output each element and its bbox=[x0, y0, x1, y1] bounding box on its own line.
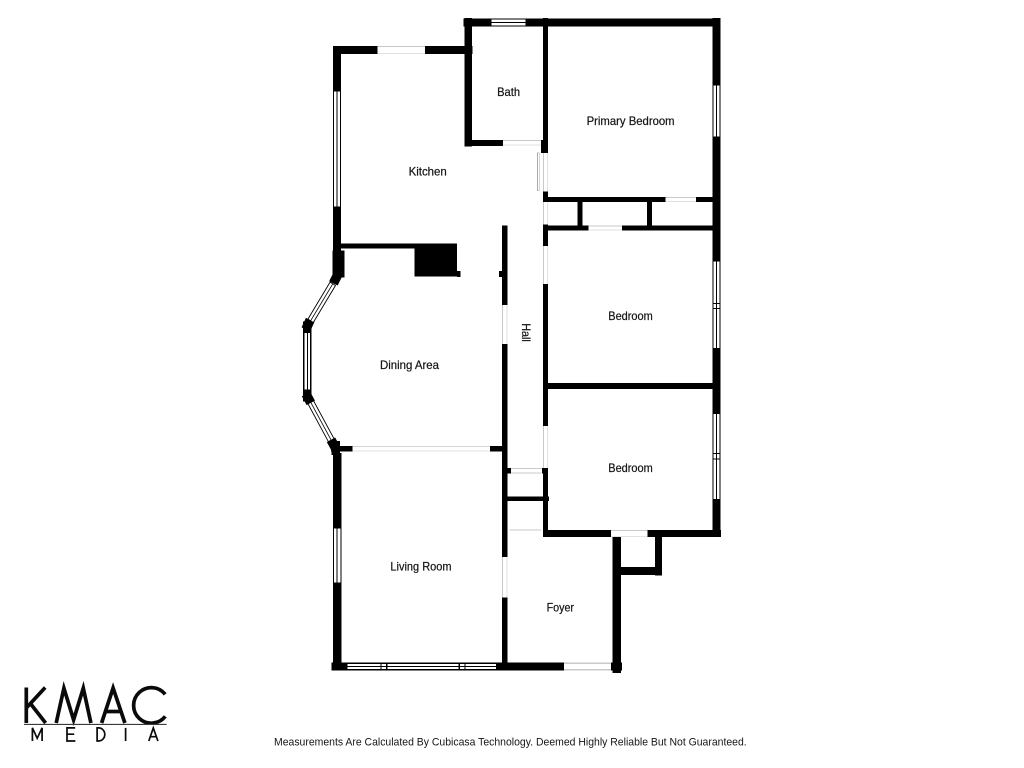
svg-text:Living Room: Living Room bbox=[390, 560, 451, 573]
svg-text:Foyer: Foyer bbox=[547, 601, 575, 614]
svg-text:Hall: Hall bbox=[519, 323, 532, 342]
svg-text:Kitchen: Kitchen bbox=[409, 166, 447, 179]
svg-text:Primary Bedroom: Primary Bedroom bbox=[587, 115, 675, 128]
svg-text:Bedroom: Bedroom bbox=[608, 462, 653, 475]
svg-text:Bedroom: Bedroom bbox=[608, 310, 653, 323]
svg-text:Measurements Are Calculated By: Measurements Are Calculated By Cubicasa … bbox=[274, 736, 747, 748]
svg-text:Bath: Bath bbox=[497, 86, 520, 99]
svg-text:Dining Area: Dining Area bbox=[380, 359, 440, 372]
